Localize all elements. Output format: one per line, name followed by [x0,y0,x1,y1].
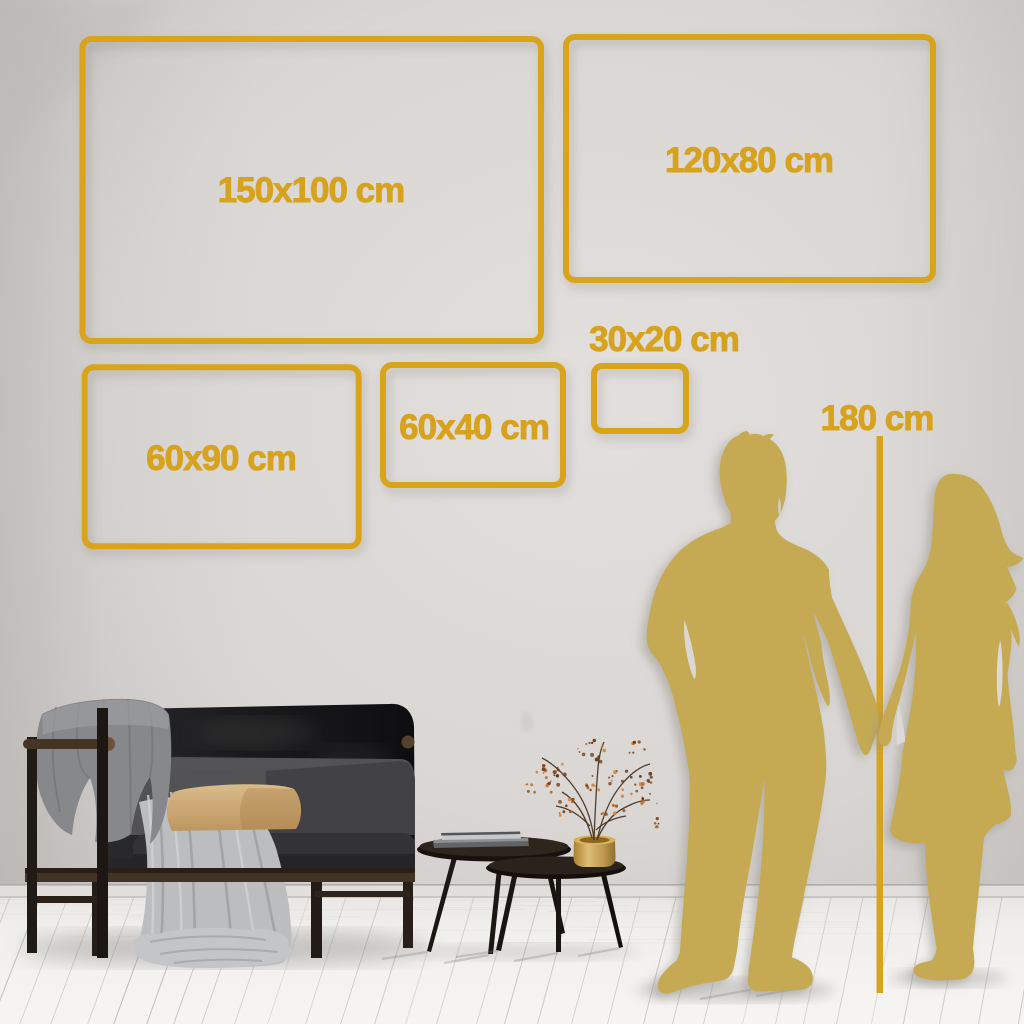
svg-text:60x40 cm: 60x40 cm [399,408,549,447]
svg-text:60x90 cm: 60x90 cm [146,439,296,478]
svg-text:180 cm: 180 cm [821,399,934,438]
svg-text:150x100 cm: 150x100 cm [218,171,405,210]
svg-text:120x80 cm: 120x80 cm [665,141,833,180]
svg-text:30x20 cm: 30x20 cm [589,320,739,359]
